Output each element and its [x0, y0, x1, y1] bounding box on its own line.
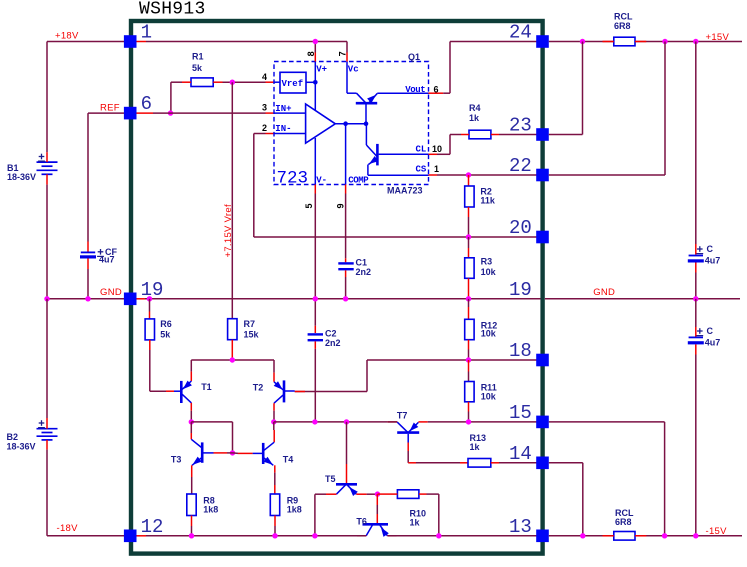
- svg-text:10k: 10k: [481, 267, 497, 277]
- svg-text:C: C: [707, 244, 714, 254]
- svg-text:1: 1: [434, 164, 439, 174]
- svg-text:+15V: +15V: [706, 32, 730, 43]
- svg-text:CS: CS: [416, 164, 427, 174]
- svg-text:4u7: 4u7: [705, 337, 721, 347]
- svg-text:18-36V: 18-36V: [7, 442, 36, 452]
- svg-text:5k: 5k: [192, 63, 203, 73]
- svg-text:15k: 15k: [244, 330, 260, 340]
- svg-text:5: 5: [304, 203, 314, 208]
- svg-text:T4: T4: [283, 454, 294, 464]
- svg-text:2: 2: [262, 123, 267, 133]
- svg-text:1k8: 1k8: [203, 505, 218, 515]
- svg-text:18: 18: [509, 340, 532, 362]
- svg-text:19: 19: [141, 279, 164, 301]
- svg-text:T6: T6: [356, 517, 367, 527]
- svg-text:V+: V+: [316, 65, 327, 75]
- svg-text:Vout: Vout: [405, 85, 425, 95]
- svg-text:2n2: 2n2: [356, 267, 372, 277]
- svg-text:14: 14: [509, 443, 532, 465]
- svg-text:7: 7: [338, 51, 348, 56]
- svg-text:R3: R3: [481, 257, 493, 267]
- svg-text:+18V: +18V: [55, 30, 79, 41]
- svg-text:20: 20: [509, 217, 532, 239]
- svg-text:18-36V: 18-36V: [7, 172, 36, 182]
- svg-text:23: 23: [509, 115, 532, 137]
- svg-text:6R8: 6R8: [614, 21, 631, 31]
- svg-text:C: C: [707, 326, 714, 336]
- svg-text:4u7: 4u7: [705, 256, 721, 266]
- svg-text:COMP: COMP: [348, 175, 369, 185]
- svg-text:T2: T2: [253, 383, 264, 393]
- svg-text:8: 8: [306, 51, 316, 56]
- svg-text:R6: R6: [160, 319, 172, 329]
- svg-text:Q1: Q1: [408, 52, 420, 62]
- svg-text:GND: GND: [100, 287, 122, 298]
- svg-text:R4: R4: [469, 103, 481, 113]
- svg-text:11k: 11k: [480, 195, 496, 205]
- svg-text:24: 24: [509, 22, 532, 44]
- svg-text:GND: GND: [593, 287, 615, 298]
- svg-text:5k: 5k: [160, 330, 171, 340]
- svg-text:Vref: Vref: [282, 79, 304, 89]
- svg-text:WSH913: WSH913: [139, 0, 206, 20]
- svg-text:1: 1: [141, 22, 152, 44]
- svg-text:15: 15: [509, 402, 532, 424]
- svg-text:1k: 1k: [410, 517, 421, 527]
- svg-text:13: 13: [509, 516, 532, 538]
- svg-text:3: 3: [262, 102, 267, 112]
- svg-text:4: 4: [262, 72, 267, 82]
- svg-text:10k: 10k: [481, 328, 497, 338]
- svg-text:T7: T7: [397, 411, 408, 421]
- svg-text:T5: T5: [325, 474, 336, 484]
- svg-text:MAA723: MAA723: [387, 186, 423, 196]
- svg-text:19: 19: [509, 279, 532, 301]
- svg-text:1k: 1k: [469, 113, 480, 123]
- svg-text:C1: C1: [356, 257, 368, 267]
- svg-text:-15V: -15V: [706, 526, 728, 537]
- svg-text:-18V: -18V: [57, 523, 79, 534]
- svg-text:R1: R1: [192, 52, 204, 62]
- svg-text:T3: T3: [171, 454, 182, 464]
- svg-text:REF: REF: [100, 103, 120, 114]
- svg-text:R7: R7: [244, 319, 256, 329]
- svg-text:IN+: IN+: [275, 104, 291, 114]
- svg-text:723: 723: [277, 169, 309, 189]
- svg-text:+7.15V Vref: +7.15V Vref: [223, 204, 234, 257]
- svg-text:RCL: RCL: [614, 12, 633, 22]
- svg-text:10k: 10k: [481, 391, 497, 401]
- svg-text:22: 22: [509, 155, 532, 177]
- svg-text:CL: CL: [416, 144, 427, 154]
- svg-text:IN-: IN-: [275, 124, 291, 134]
- svg-text:2n2: 2n2: [325, 338, 341, 348]
- svg-text:12: 12: [141, 516, 164, 538]
- svg-text:1k: 1k: [470, 442, 481, 452]
- svg-text:V-: V-: [316, 175, 327, 185]
- svg-text:6R8: 6R8: [615, 517, 632, 527]
- svg-text:T1: T1: [201, 382, 212, 392]
- svg-text:10: 10: [432, 144, 442, 154]
- svg-text:6: 6: [141, 93, 152, 115]
- svg-text:Vc: Vc: [348, 65, 359, 75]
- svg-text:4u7: 4u7: [99, 254, 115, 264]
- svg-text:6: 6: [434, 84, 439, 94]
- svg-text:9: 9: [336, 203, 346, 208]
- svg-text:1k8: 1k8: [287, 505, 302, 515]
- svg-text:B2: B2: [7, 432, 19, 442]
